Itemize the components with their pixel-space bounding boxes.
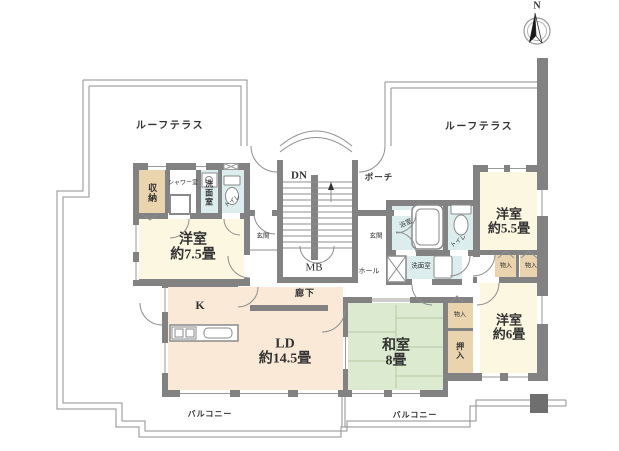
- living-dining-label: LD 約14.5畳: [259, 337, 312, 368]
- balcony-left-label: バルコニー: [188, 409, 233, 418]
- washer: [434, 256, 452, 278]
- storage-3-label: 物入: [454, 313, 466, 320]
- stair-up-arrow: [328, 182, 334, 190]
- roof-terrace-left-label: ルーフテラス: [136, 120, 204, 132]
- porch-label: ポーチ: [365, 173, 394, 183]
- washroom-left-label: 洗面室: [204, 180, 213, 207]
- storage-1-label: 物入: [500, 264, 512, 271]
- toilet-right-bowl: [454, 215, 468, 235]
- closet-label: 収納: [147, 183, 157, 203]
- shower-stall: [170, 195, 190, 214]
- kitchen-label: K: [195, 299, 204, 313]
- japanese-room-label: 和室 8畳: [382, 339, 410, 370]
- kitchen-sink: [204, 328, 232, 338]
- north-label: N: [533, 0, 540, 12]
- washroom-right-label: 洗面室: [411, 262, 431, 269]
- compass: [524, 13, 550, 44]
- pillar: [530, 394, 548, 413]
- entrance-right-label: 玄関: [370, 232, 383, 239]
- toilet-left-tank: [224, 176, 240, 185]
- western-room-7-5-label: 洋室 約7.5畳: [170, 233, 216, 264]
- meter-box-label: MB: [305, 262, 322, 275]
- shower-room-label: シャワー室: [168, 181, 198, 188]
- roof-terrace-right-label: ルーフテラス: [445, 121, 513, 133]
- toilet-right-tank: [451, 205, 471, 214]
- hall-label: ホール: [359, 267, 380, 275]
- western-room-5-5-label: 洋室 約5.5畳: [488, 208, 530, 237]
- western-room-6-label: 洋室 約6畳: [493, 314, 526, 343]
- corridor-label: 廊下: [295, 288, 315, 298]
- futon-closet-label: 押入: [455, 342, 464, 360]
- balcony-right-label: バルコニー: [393, 410, 438, 419]
- stairs-dn-label: DN: [291, 170, 307, 183]
- floor-plan: N ルーフテラス ルーフテラス ポーチ DN MB 玄関 玄関 ホール 廊下 収…: [0, 0, 619, 451]
- entrance-left-label: 玄関: [257, 232, 270, 239]
- storage-2-label: 物入: [525, 264, 537, 271]
